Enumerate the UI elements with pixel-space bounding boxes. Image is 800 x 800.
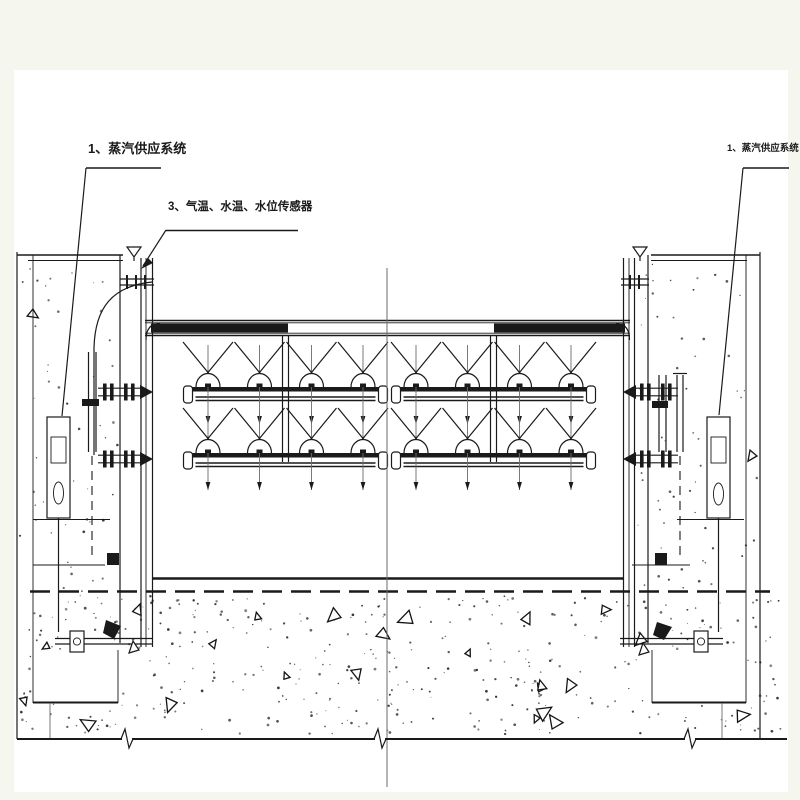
nozzle-stub: [465, 450, 471, 454]
stipple-dot: [89, 716, 91, 718]
stipple-dot: [639, 732, 641, 734]
stipple-dot: [329, 698, 331, 700]
stipple-dot: [661, 437, 663, 439]
stipple-dot: [500, 623, 502, 625]
stipple-dot: [89, 521, 90, 522]
stipple-dot: [549, 732, 551, 734]
stipple-dot: [397, 684, 398, 685]
stipple-dot: [36, 457, 38, 459]
stipple-dot: [201, 729, 202, 730]
nozzle-stub: [257, 384, 263, 388]
stipple-dot: [726, 641, 729, 644]
stipple-dot: [277, 687, 280, 690]
stipple-dot: [244, 609, 247, 612]
stipple-dot: [164, 709, 166, 711]
stipple-dot: [694, 355, 696, 357]
stipple-dot: [193, 614, 194, 615]
nozzle-stub: [205, 450, 211, 454]
stipple-dot: [507, 599, 508, 600]
stipple-dot: [397, 709, 399, 711]
stipple-dot: [28, 629, 30, 631]
foundation-recess-left: [33, 650, 118, 703]
stipple-dot: [39, 615, 42, 618]
stipple-dot: [341, 723, 342, 724]
stipple-dot: [112, 494, 114, 496]
stipple-dot: [324, 726, 326, 728]
stipple-dot: [574, 624, 577, 627]
stipple-dot: [294, 664, 295, 665]
stipple-dot: [763, 700, 765, 702]
stipple-dot: [100, 425, 101, 426]
stipple-dot: [206, 631, 208, 633]
stipple-dot: [513, 723, 516, 726]
stipple-dot: [702, 338, 705, 341]
stipple-dot: [375, 658, 376, 659]
stipple-dot: [315, 692, 317, 694]
stipple-dot: [220, 610, 223, 613]
label-steam-system-right: 1、蒸汽供应系统: [727, 142, 799, 154]
stipple-dot: [755, 626, 758, 629]
stipple-dot: [112, 421, 115, 424]
stipple-dot: [300, 620, 301, 621]
stipple-dot: [614, 666, 616, 668]
stipple-dot: [551, 613, 554, 616]
stipple-dot: [57, 636, 58, 637]
stipple-dot: [778, 600, 780, 602]
stipple-dot: [419, 606, 420, 607]
stipple-dot: [558, 665, 560, 667]
stipple-dot: [504, 595, 506, 597]
nozzle-stub: [309, 384, 315, 388]
stipple-dot: [80, 595, 81, 596]
stipple-dot: [448, 651, 450, 653]
stipple-dot: [531, 689, 533, 691]
stipple-dot: [693, 289, 695, 291]
stipple-dot: [663, 522, 665, 524]
stipple-dot: [179, 632, 182, 635]
stipple-dot: [770, 600, 772, 602]
stipple-dot: [267, 724, 270, 727]
stipple-dot: [49, 278, 51, 280]
stipple-dot: [689, 490, 691, 492]
stipple-dot: [636, 659, 637, 660]
stipple-dot: [765, 640, 766, 641]
stipple-dot: [646, 274, 647, 275]
stipple-dot: [239, 732, 241, 734]
stipple-dot: [29, 690, 31, 692]
stipple-dot: [184, 681, 185, 682]
stipple-dot: [98, 725, 99, 726]
stipple-dot: [614, 700, 616, 702]
stipple-dot: [47, 364, 49, 366]
stipple-dot: [174, 710, 176, 712]
stipple-dot: [394, 658, 395, 659]
stipple-dot: [324, 650, 326, 652]
label-steam-system-left: 1、蒸汽供应系统: [88, 141, 186, 156]
stipple-dot: [289, 663, 291, 665]
stipple-dot: [434, 678, 436, 680]
stipple-dot: [720, 628, 721, 629]
stipple-dot: [122, 692, 124, 694]
stipple-dot: [518, 651, 519, 652]
stipple-dot: [122, 705, 123, 706]
pipe-end-bracket: [379, 452, 388, 469]
stipple-dot: [747, 660, 748, 661]
stipple-dot: [310, 711, 312, 713]
flange-plate: [110, 384, 114, 401]
stipple-dot: [395, 666, 397, 668]
stipple-dot: [584, 635, 585, 636]
stipple-dot: [329, 664, 330, 665]
guide-shoe-right: [655, 553, 667, 565]
stipple-dot: [660, 547, 661, 548]
stipple-dot: [316, 713, 317, 714]
stipple-dot: [377, 606, 379, 608]
stipple-dot: [670, 618, 672, 620]
stipple-dot: [23, 692, 25, 694]
stipple-dot: [95, 617, 97, 619]
stipple-dot: [591, 702, 594, 705]
stipple-dot: [660, 611, 663, 614]
stipple-dot: [192, 599, 194, 601]
stipple-dot: [477, 728, 479, 730]
stipple-dot: [728, 355, 731, 358]
stipple-dot: [632, 710, 634, 712]
stipple-dot: [445, 636, 446, 637]
stipple-dot: [576, 694, 578, 696]
stipple-dot: [191, 641, 192, 642]
stipple-dot: [171, 642, 174, 645]
stipple-dot: [754, 729, 756, 731]
nozzle-stub: [257, 450, 263, 454]
stipple-dot: [267, 717, 270, 720]
stipple-dot: [246, 632, 248, 634]
stipple-dot: [756, 599, 758, 601]
stipple-dot: [698, 438, 700, 440]
stipple-dot: [372, 653, 374, 655]
stipple-dot: [383, 616, 384, 617]
stipple-dot: [698, 580, 701, 583]
stipple-dot: [350, 617, 351, 618]
stipple-dot: [687, 623, 688, 624]
stipple-dot: [78, 428, 81, 431]
stipple-dot: [352, 613, 355, 616]
stipple-dot: [670, 280, 672, 282]
stipple-dot: [383, 613, 385, 615]
stipple-dot: [645, 607, 648, 610]
stipple-dot: [310, 714, 313, 717]
stipple-dot: [194, 631, 196, 633]
stipple-dot: [736, 619, 739, 622]
stipple-dot: [571, 614, 573, 616]
stipple-dot: [247, 598, 248, 599]
stipple-dot: [669, 490, 672, 493]
stipple-dot: [413, 689, 414, 690]
stipple-dot: [115, 724, 116, 725]
stipple-dot: [286, 636, 288, 638]
stipple-dot: [114, 639, 115, 640]
stipple-dot: [473, 725, 476, 728]
stipple-dot: [63, 587, 65, 589]
stipple-dot: [134, 716, 137, 719]
stipple-dot: [201, 690, 204, 693]
stipple-dot: [776, 697, 779, 700]
stipple-dot: [213, 671, 215, 673]
stipple-dot: [482, 679, 484, 681]
stipple-dot: [429, 691, 431, 693]
stipple-dot: [673, 317, 675, 319]
stipple-dot: [449, 621, 451, 623]
stipple-dot: [57, 310, 60, 313]
stipple-dot: [779, 728, 781, 730]
stipple-dot: [261, 620, 262, 621]
stipple-dot: [491, 614, 493, 616]
stipple-dot: [725, 725, 727, 727]
stipple-dot: [109, 710, 111, 712]
guide-shoe-left: [107, 553, 119, 565]
stipple-dot: [283, 622, 285, 624]
stipple-dot: [22, 281, 24, 283]
stipple-dot: [306, 617, 309, 620]
stipple-dot: [164, 712, 165, 713]
stipple-dot: [712, 547, 714, 549]
stipple-dot: [421, 688, 423, 690]
stipple-dot: [244, 673, 246, 675]
stipple-dot: [551, 659, 553, 661]
stipple-dot: [740, 724, 741, 725]
stipple-dot: [641, 324, 642, 325]
pipe-end-bracket: [587, 386, 596, 403]
nozzle-stub: [568, 384, 574, 388]
stipple-dot: [644, 584, 646, 586]
flange-plate: [131, 451, 135, 468]
stipple-dot: [752, 602, 754, 604]
stipple-dot: [525, 659, 526, 660]
stipple-dot: [252, 674, 254, 676]
flange-plate: [131, 384, 135, 401]
stipple-dot: [672, 630, 673, 631]
engineering-drawing: 1、蒸汽供应系统 3、气温、水温、水位传感器 1、蒸汽供应系统: [0, 0, 800, 800]
stipple-dot: [355, 710, 357, 712]
stipple-dot: [511, 704, 513, 706]
flange-plate: [124, 451, 128, 468]
stipple-dot: [31, 728, 33, 730]
stipple-dot: [192, 668, 194, 670]
stipple-dot: [68, 717, 70, 719]
stipple-dot: [29, 268, 31, 270]
stipple-dot: [20, 711, 23, 714]
stipple-dot: [505, 730, 507, 732]
stipple-dot: [276, 720, 279, 723]
stipple-dot: [686, 609, 688, 611]
stipple-dot: [540, 671, 542, 673]
stipple-dot: [579, 671, 581, 673]
stipple-dot: [673, 496, 675, 498]
stipple-dot: [699, 627, 700, 628]
nozzle-stub: [413, 384, 419, 388]
stipple-dot: [652, 264, 653, 265]
stipple-dot: [67, 562, 69, 564]
stipple-dot: [84, 607, 87, 610]
stipple-dot: [233, 627, 234, 628]
stipple-dot: [59, 648, 61, 650]
stipple-dot: [676, 648, 679, 651]
stipple-dot: [486, 698, 489, 701]
stipple-dot: [212, 680, 214, 682]
stipple-dot: [171, 691, 173, 693]
stipple-dot: [672, 645, 673, 646]
stipple-dot: [473, 605, 475, 607]
stipple-dot: [102, 578, 104, 580]
stipple-dot: [709, 626, 712, 629]
stipple-dot: [600, 621, 602, 623]
stipple-dot: [197, 603, 199, 605]
stipple-dot: [642, 700, 643, 701]
flange-plate: [647, 384, 651, 401]
flange-plate: [640, 384, 644, 401]
nozzle-stub: [360, 384, 366, 388]
stipple-dot: [681, 337, 683, 339]
spray-pipe-bar: [192, 387, 380, 392]
flange-plate: [103, 384, 107, 401]
stipple-dot: [755, 661, 757, 663]
stipple-dot: [65, 524, 66, 525]
stipple-dot: [740, 397, 742, 399]
stipple-dot: [227, 619, 229, 621]
stipple-dot: [432, 718, 434, 720]
drawing-canvas: 1、蒸汽供应系统 3、气温、水温、水位传感器 1、蒸汽供应系统: [0, 0, 800, 800]
pipe-end-bracket: [379, 386, 388, 403]
stipple-dot: [652, 292, 654, 294]
stipple-dot: [213, 676, 216, 679]
stipple-dot: [448, 598, 450, 600]
stipple-dot: [68, 602, 69, 603]
stipple-dot: [94, 629, 96, 631]
stipple-dot: [318, 673, 321, 676]
stipple-dot: [82, 530, 85, 533]
stipple-dot: [447, 667, 450, 670]
stipple-dot: [595, 636, 598, 639]
flange-plate: [661, 451, 665, 468]
stipple-dot: [469, 712, 471, 714]
stipple-dot: [411, 721, 413, 723]
stipple-dot: [499, 605, 501, 607]
stipple-dot: [390, 703, 391, 704]
stipple-dot: [538, 695, 540, 697]
stipple-dot: [676, 367, 679, 370]
stipple-dot: [109, 339, 111, 341]
stipple-dot: [247, 616, 249, 618]
stipple-dot: [30, 656, 32, 658]
stipple-dot: [469, 618, 472, 621]
stipple-dot: [500, 719, 502, 721]
stipple-dot: [116, 444, 119, 447]
stipple-dot: [517, 611, 518, 612]
stipple-dot: [462, 600, 463, 601]
nozzle-stub: [517, 384, 523, 388]
stipple-dot: [36, 639, 38, 641]
stipple-dot: [527, 649, 529, 651]
stipple-dot: [523, 625, 525, 627]
stipple-dot: [701, 705, 703, 707]
stipple-dot: [606, 615, 608, 617]
stipple-dot: [65, 608, 68, 611]
pipe-flange-left: [82, 399, 99, 406]
stipple-dot: [105, 437, 106, 438]
stipple-dot: [228, 719, 231, 722]
stipple-dot: [769, 664, 772, 667]
flange-plate: [110, 451, 114, 468]
stipple-dot: [347, 633, 349, 635]
steam-header-pipe-right: [494, 324, 625, 333]
stipple-dot: [136, 704, 138, 706]
stipple-dot: [358, 682, 360, 684]
stipple-dot: [178, 603, 180, 605]
stipple-dot: [110, 726, 111, 727]
stipple-dot: [102, 281, 104, 283]
stipple-dot: [603, 614, 606, 617]
stipple-dot: [40, 630, 42, 632]
stipple-dot: [539, 729, 540, 730]
stipple-dot: [298, 678, 300, 680]
foundation-recess-right: [652, 650, 746, 703]
stipple-dot: [495, 696, 497, 698]
stipple-dot: [772, 678, 774, 680]
anchor-bolt: [694, 631, 708, 652]
stipple-dot: [366, 722, 368, 724]
stipple-dot: [110, 616, 111, 617]
stipple-dot: [242, 689, 244, 691]
stipple-dot: [53, 704, 54, 705]
stipple-dot: [388, 651, 390, 653]
stipple-dot: [624, 661, 625, 662]
stipple-dot: [153, 675, 155, 677]
stipple-dot: [489, 659, 491, 661]
stipple-dot: [756, 477, 759, 480]
stipple-dot: [101, 603, 103, 605]
stipple-dot: [33, 612, 35, 614]
stipple-dot: [476, 669, 478, 671]
stipple-dot: [389, 731, 392, 734]
stipple-dot: [478, 720, 480, 722]
stipple-dot: [167, 628, 170, 631]
stipple-dot: [702, 560, 704, 562]
stipple-dot: [43, 501, 44, 502]
stipple-dot: [166, 656, 167, 657]
stipple-dot: [753, 539, 755, 541]
stipple-dot: [332, 733, 333, 734]
stipple-dot: [366, 633, 368, 635]
stipple-dot: [627, 605, 629, 607]
pipe-end-bracket: [184, 452, 193, 469]
stipple-dot: [695, 481, 696, 482]
stipple-dot: [183, 702, 185, 704]
stipple-dot: [232, 599, 234, 601]
stipple-dot: [714, 274, 716, 276]
stipple-dot: [202, 646, 204, 648]
stipple-dot: [656, 316, 658, 318]
stipple-dot: [774, 684, 776, 686]
stipple-dot: [578, 717, 579, 718]
stipple-dot: [769, 636, 771, 638]
stipple-dot: [695, 607, 696, 608]
nozzle-stub: [360, 450, 366, 454]
stipple-dot: [652, 280, 654, 282]
stipple-dot: [51, 646, 52, 647]
stipple-dot: [680, 632, 682, 634]
stipple-dot: [169, 607, 172, 610]
stipple-dot: [74, 601, 76, 603]
